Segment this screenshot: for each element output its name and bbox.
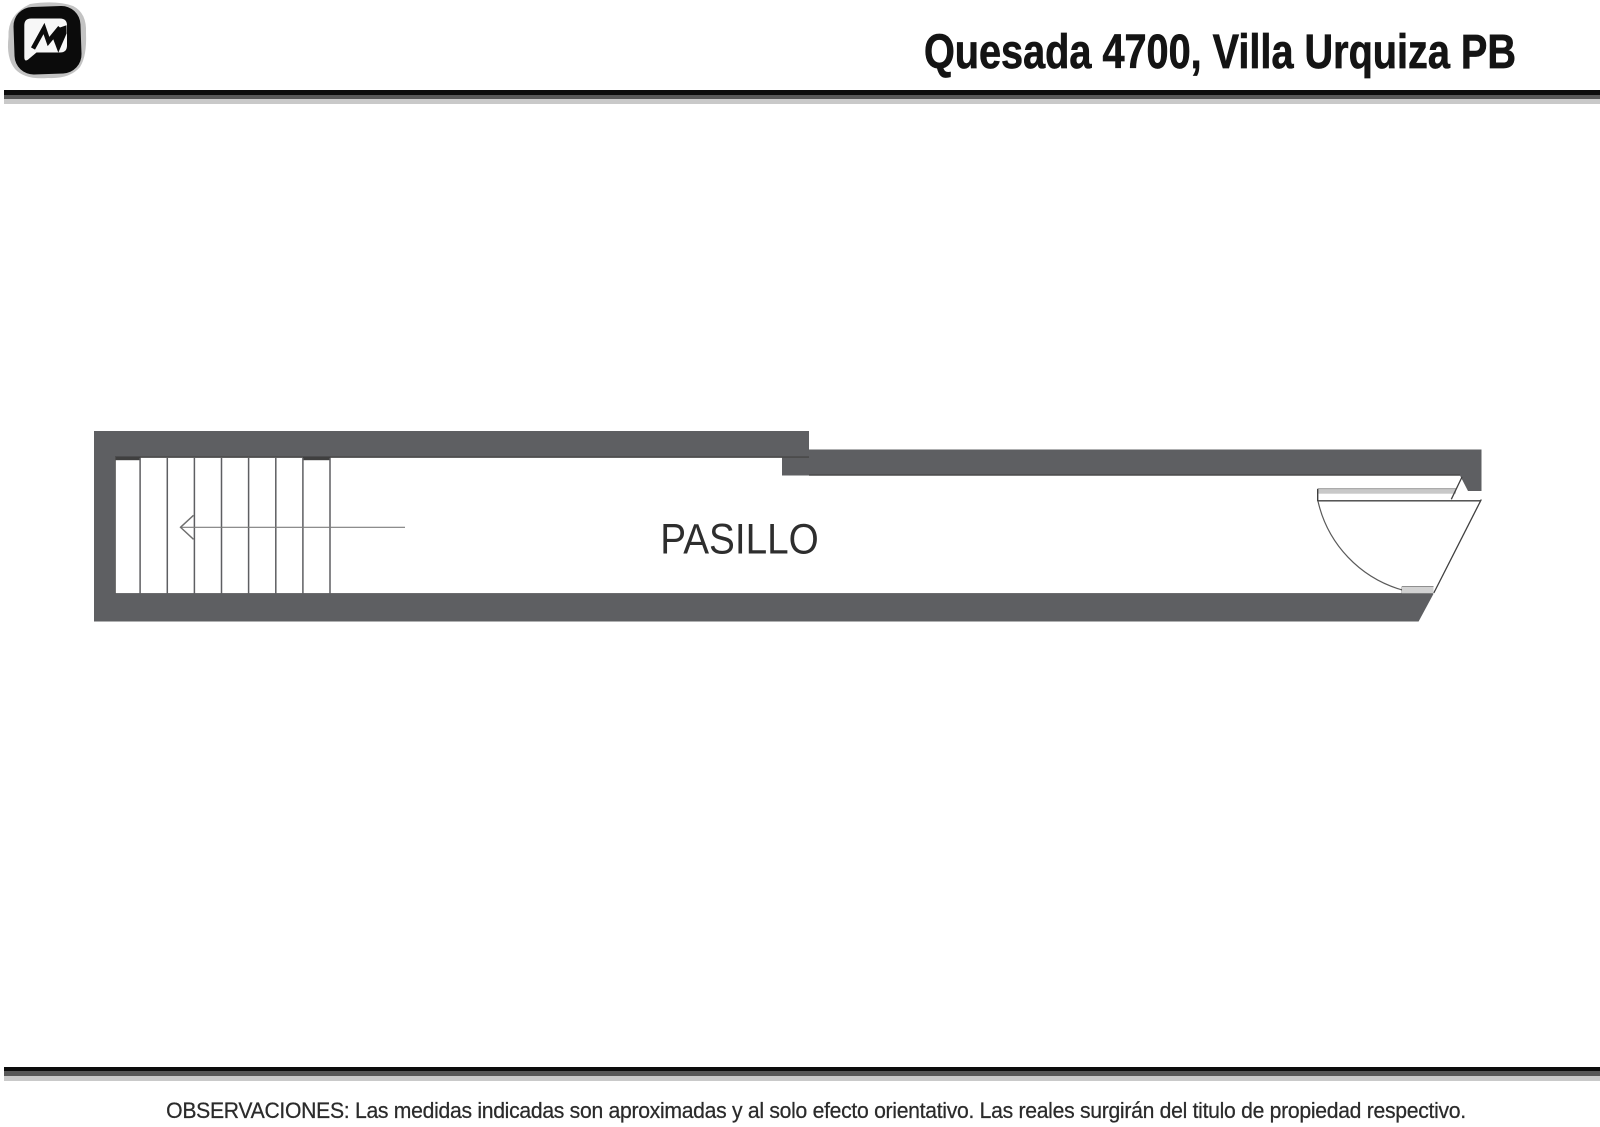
svg-text:PASILLO: PASILLO xyxy=(660,515,818,563)
